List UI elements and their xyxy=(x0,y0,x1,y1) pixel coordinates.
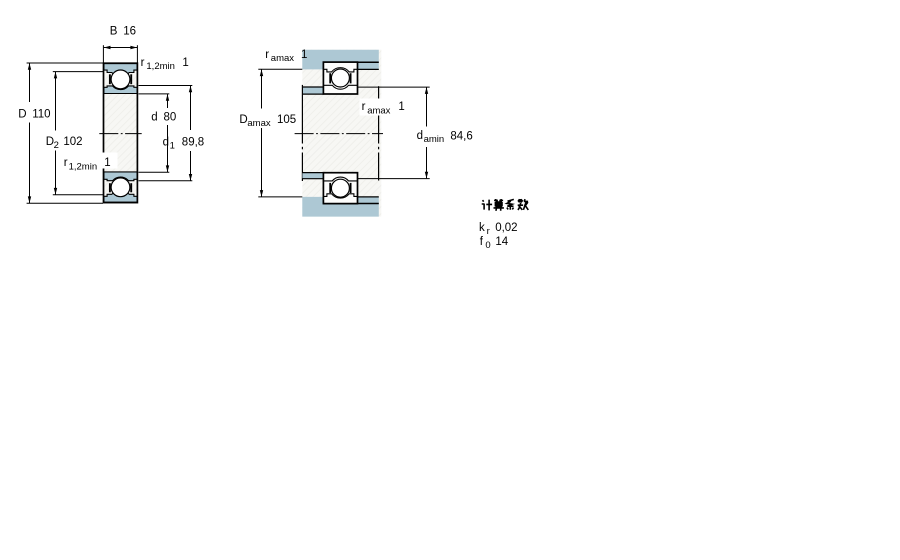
svg-text:89,8: 89,8 xyxy=(182,136,204,148)
svg-text:amin: amin xyxy=(424,134,445,145)
svg-text:d 80: d 80 xyxy=(151,112,176,124)
svg-text:0: 0 xyxy=(485,240,490,251)
svg-text:r: r xyxy=(265,49,269,61)
svg-text:r: r xyxy=(362,101,366,113)
svg-text:1: 1 xyxy=(170,140,175,151)
svg-text:d: d xyxy=(163,136,169,148)
svg-text:2: 2 xyxy=(54,140,59,151)
svg-text:amax: amax xyxy=(367,105,390,116)
svg-text:1: 1 xyxy=(182,57,188,69)
svg-text:D 110: D 110 xyxy=(18,108,50,120)
svg-text:1: 1 xyxy=(398,101,404,113)
svg-text:B 16: B 16 xyxy=(110,25,136,37)
svg-text:105: 105 xyxy=(277,114,296,126)
svg-text:r: r xyxy=(487,226,490,237)
svg-text:d: d xyxy=(417,130,423,142)
svg-text:1,2min: 1,2min xyxy=(146,61,175,72)
svg-text:14: 14 xyxy=(495,236,508,248)
svg-text:1: 1 xyxy=(104,157,110,169)
svg-text:0,02: 0,02 xyxy=(495,222,517,234)
svg-text:84,6: 84,6 xyxy=(450,131,472,143)
svg-text:k: k xyxy=(479,222,485,234)
svg-text:1,2min: 1,2min xyxy=(69,161,98,172)
svg-text:r: r xyxy=(141,57,145,69)
svg-text:102: 102 xyxy=(63,136,82,148)
svg-text:amax: amax xyxy=(271,53,294,64)
svg-text:amax: amax xyxy=(247,118,270,129)
svg-text:r: r xyxy=(64,157,68,169)
svg-text:1: 1 xyxy=(301,49,307,61)
